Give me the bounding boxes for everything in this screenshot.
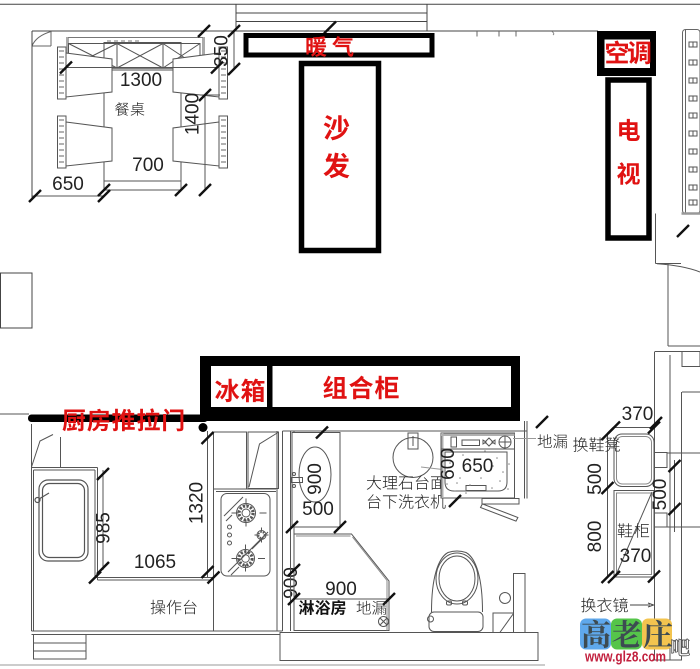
svg-text:900: 900 [305, 463, 326, 495]
svg-text:985: 985 [94, 512, 115, 544]
svg-text:650: 650 [52, 174, 84, 195]
svg-text:350: 350 [212, 35, 233, 67]
svg-text:500: 500 [650, 479, 671, 511]
svg-text:600: 600 [438, 448, 459, 480]
svg-text:500: 500 [302, 499, 334, 520]
svg-text:800: 800 [585, 521, 606, 553]
svg-text:370: 370 [620, 546, 652, 567]
svg-text:370: 370 [622, 404, 654, 425]
svg-text:650: 650 [462, 456, 494, 477]
svg-text:1065: 1065 [134, 552, 176, 573]
svg-text:www.glz8.com: www.glz8.com [584, 650, 666, 666]
svg-text:700: 700 [132, 155, 164, 176]
svg-text:1320: 1320 [187, 482, 208, 524]
svg-text:900: 900 [325, 579, 357, 600]
svg-text:500: 500 [585, 463, 606, 495]
svg-text:1300: 1300 [120, 70, 162, 91]
svg-text:1400: 1400 [183, 93, 204, 135]
